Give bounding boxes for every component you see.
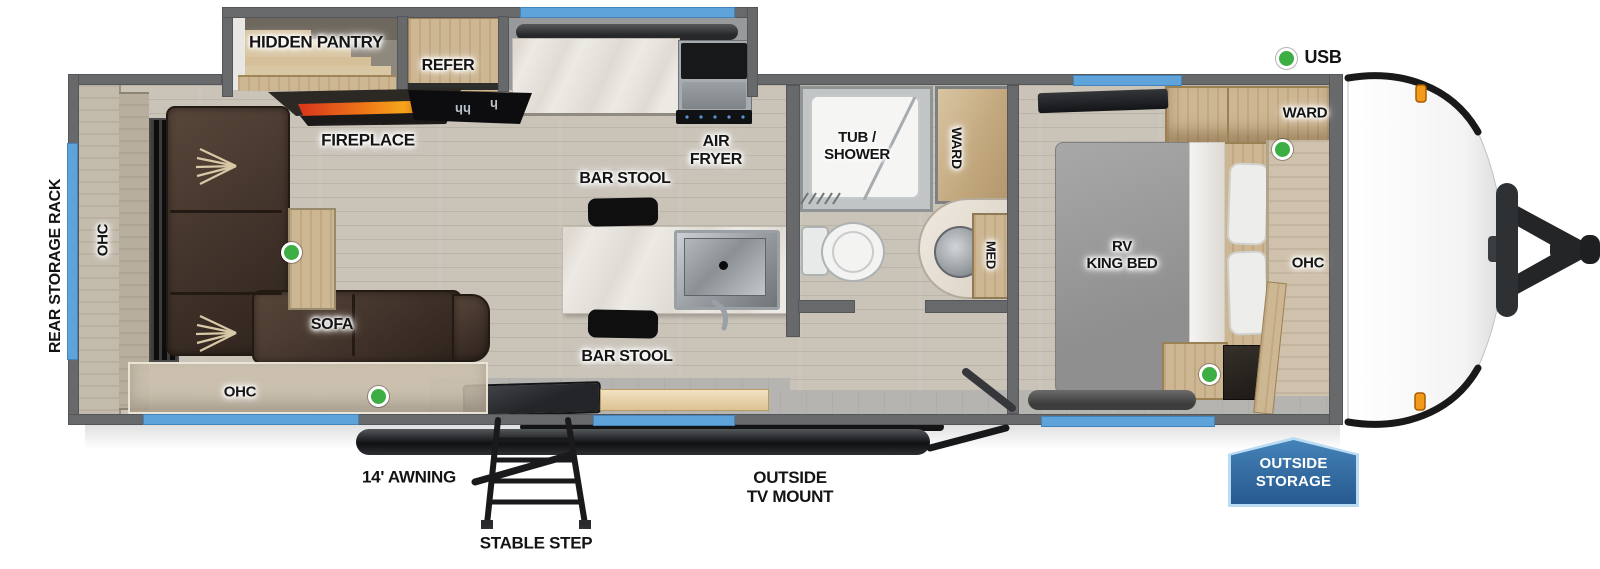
wall-top-right	[757, 74, 1340, 85]
bath-wall-bottom-right	[925, 300, 1009, 313]
sink-drain	[719, 261, 728, 270]
range-burner-knobs	[680, 114, 750, 120]
pantry-bottom-shelf	[238, 75, 396, 91]
label-tub-shower-line1: TUB /	[838, 129, 876, 146]
marker-light-bottom	[1415, 393, 1425, 410]
bar-stool-bottom	[588, 309, 658, 338]
rv-floorplan-canvas: ɥɥ ɥ	[0, 0, 1600, 569]
bar-stool-top	[588, 197, 658, 226]
outside-storage-line1: OUTSIDE	[1259, 455, 1327, 472]
label-ohc-bedroom: OHC	[1292, 256, 1324, 273]
marker-light-top	[1416, 85, 1426, 102]
green-indicator-living-ohc	[368, 386, 389, 407]
label-rv-king-bed-line1: RV	[1112, 238, 1132, 255]
refer-divider-wall	[498, 16, 509, 92]
slideout-wall-left	[222, 7, 233, 97]
outside-storage-line2: STORAGE	[1256, 473, 1331, 490]
label-refer: REFER	[422, 57, 475, 75]
outside-storage-badge-face: OUTSIDE STORAGE	[1231, 440, 1356, 504]
label-usb: USB	[1304, 47, 1341, 67]
bedroom-partition-wall	[1007, 85, 1019, 414]
label-bar-stool-top: BAR STOOL	[579, 170, 670, 188]
label-tub-shower: TUB / SHOWER	[824, 130, 890, 164]
sofa-bottom-section	[252, 290, 462, 364]
toilet-seat-ring	[832, 231, 874, 273]
window-bedroom-top	[1073, 75, 1182, 86]
refrigerator	[408, 18, 500, 92]
bath-ward-closet	[935, 86, 1013, 204]
range-black-top	[681, 43, 747, 79]
kitchen-counter	[512, 38, 680, 116]
living-overhead-cabinet	[128, 362, 488, 414]
refrigerator-base-strip	[408, 83, 498, 90]
label-med: MED	[983, 241, 998, 269]
label-stable-step: STABLE STEP	[480, 533, 593, 552]
label-sofa: SOFA	[311, 316, 353, 334]
range-drawer	[682, 82, 746, 109]
window-bedroom-bottom	[1041, 416, 1215, 427]
label-ohc-living: OHC	[224, 385, 256, 402]
window-rear-wall	[67, 143, 78, 360]
front-cap	[1348, 76, 1503, 425]
label-ward-bedroom: WARD	[1283, 106, 1328, 123]
label-air-fryer-line1: AIR	[703, 133, 730, 150]
sofa-arm	[452, 294, 490, 362]
green-indicator-bedroom-ohc	[1272, 139, 1293, 160]
label-rv-king-bed: RV KING BED	[1087, 239, 1158, 273]
bedroom-ward-divider	[1227, 88, 1229, 138]
label-awning: 14' AWNING	[362, 467, 456, 486]
label-hidden-pantry: HIDDEN PANTRY	[249, 32, 383, 51]
label-bar-stool-bottom: BAR STOOL	[581, 348, 672, 366]
bath-wall-bottom-left	[798, 300, 855, 313]
label-outside-tv-mount: OUTSIDE TV MOUNT	[747, 468, 833, 506]
sofa-chaise-seam-2	[170, 292, 282, 295]
wall-right-front	[1329, 74, 1343, 425]
label-outside-tv-mount-line2: TV MOUNT	[747, 487, 833, 506]
hitch-tongue	[1488, 183, 1600, 317]
sofa-chaise-seam-1	[170, 210, 282, 213]
entry-bench	[600, 389, 769, 411]
label-outside-tv-mount-line1: OUTSIDE	[753, 468, 826, 487]
label-air-fryer: AIR FRYER	[690, 133, 742, 169]
window-slideout-top	[520, 7, 735, 18]
slideout-wall-right	[747, 7, 758, 97]
label-tub-shower-line2: SHOWER	[824, 146, 890, 163]
bed-pillow-1	[1227, 162, 1270, 245]
label-ohc-rear: OHC	[96, 224, 113, 256]
wall-top-left	[68, 74, 222, 85]
green-indicator-nightstand	[1199, 364, 1220, 385]
window-entry-door	[593, 415, 735, 426]
green-indicator-living-table	[281, 242, 302, 263]
label-fireplace: FIREPLACE	[321, 130, 415, 149]
label-rv-king-bed-line2: KING BED	[1087, 255, 1158, 272]
usb-indicator-dot	[1276, 48, 1297, 69]
label-rear-storage-rack: REAR STORAGE RACK	[47, 179, 65, 353]
label-air-fryer-line2: FRYER	[690, 151, 742, 168]
bed-bolster	[1028, 390, 1196, 410]
awning-roller-tube	[356, 429, 930, 455]
pantry-divider-wall	[397, 16, 408, 92]
window-bottom-living	[143, 414, 359, 425]
label-ward-bath: WARD	[948, 127, 964, 169]
